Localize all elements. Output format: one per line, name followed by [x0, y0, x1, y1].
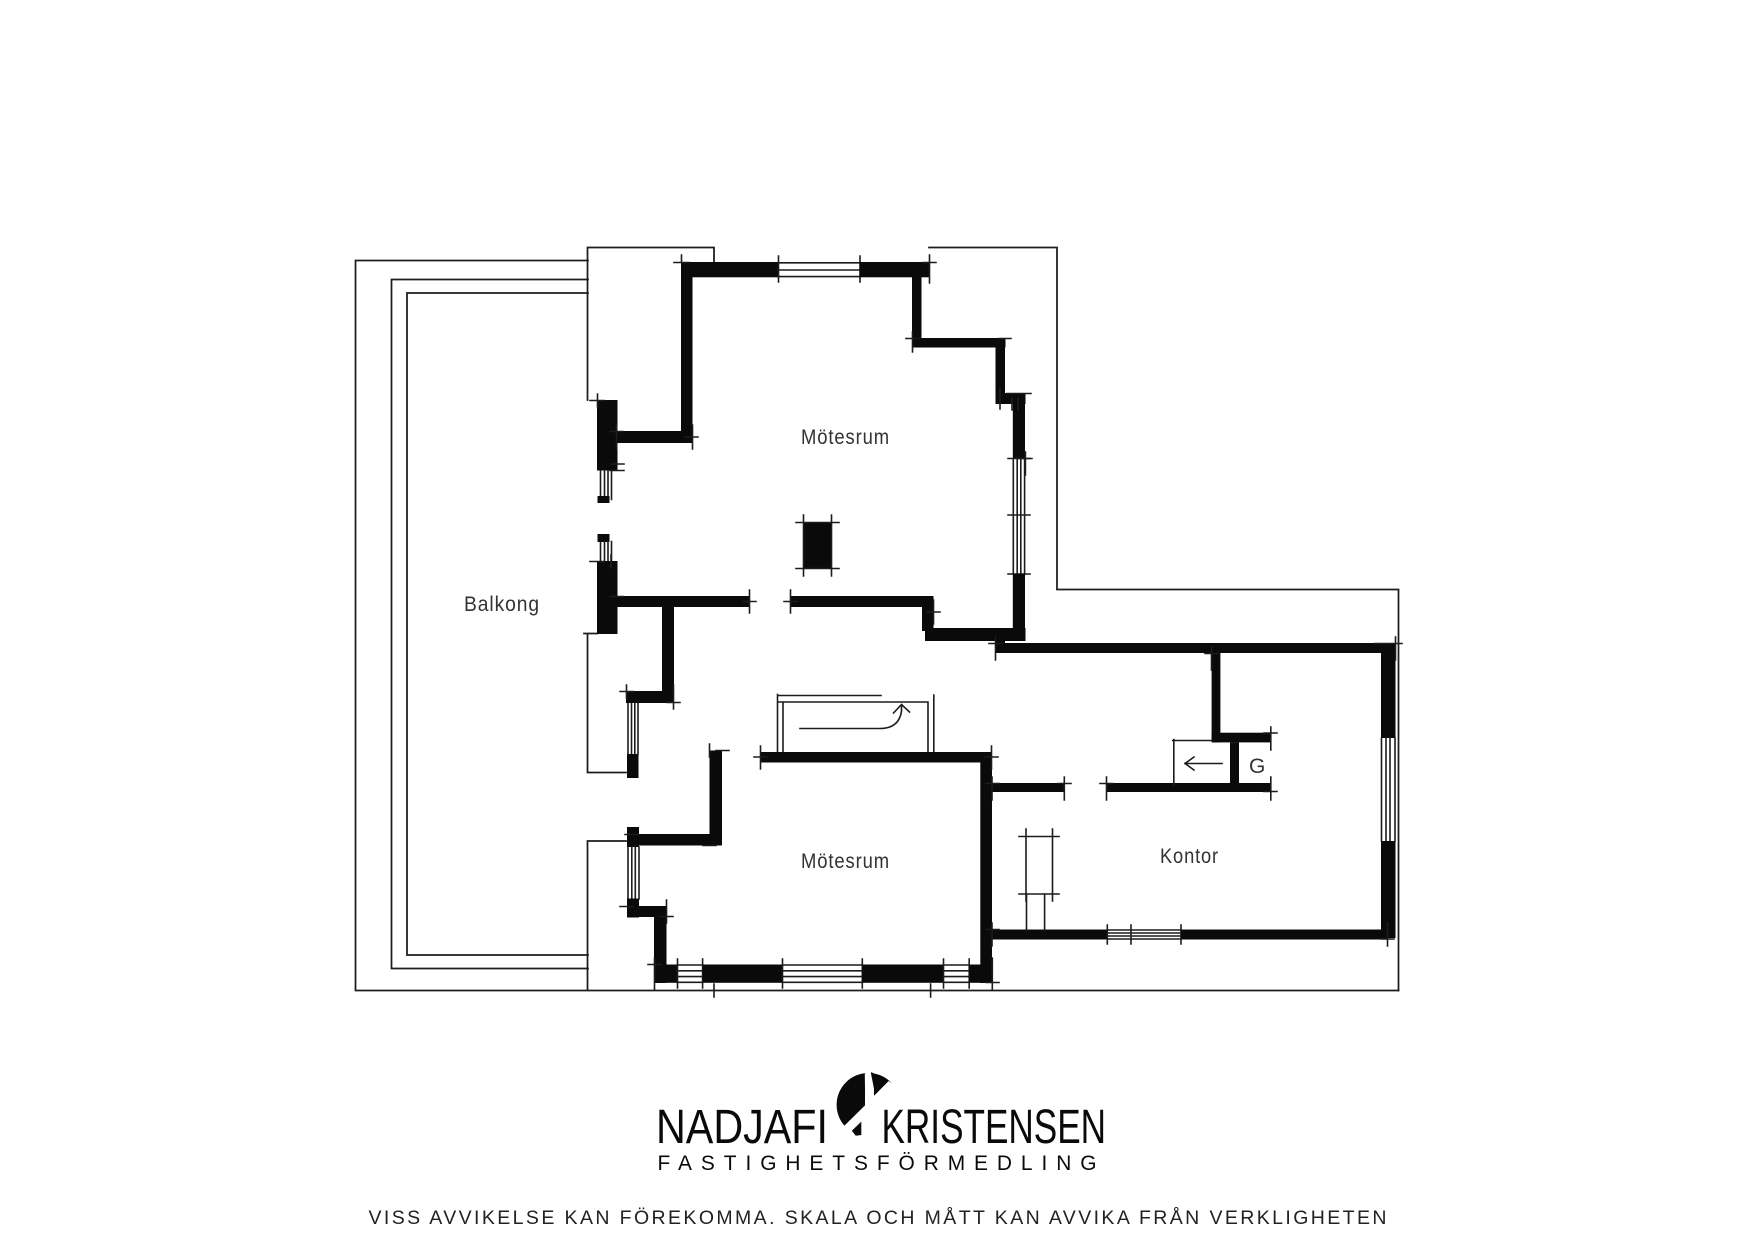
svg-text:Balkong: Balkong	[464, 593, 540, 616]
svg-text:Mötesrum: Mötesrum	[801, 850, 890, 873]
svg-text:KRISTENSEN: KRISTENSEN	[882, 1100, 1107, 1154]
svg-text:VISS AVVIKELSE KAN FÖREKOMMA.: VISS AVVIKELSE KAN FÖREKOMMA. SKALA OCH …	[369, 1206, 1387, 1229]
svg-text:G: G	[1249, 755, 1266, 778]
svg-text:NADJAFI: NADJAFI	[656, 1100, 828, 1154]
svg-text:Mötesrum: Mötesrum	[801, 426, 890, 449]
svg-text:FASTIGHETSFÖRMEDLING: FASTIGHETSFÖRMEDLING	[658, 1152, 1097, 1175]
svg-text:Kontor: Kontor	[1160, 845, 1219, 868]
